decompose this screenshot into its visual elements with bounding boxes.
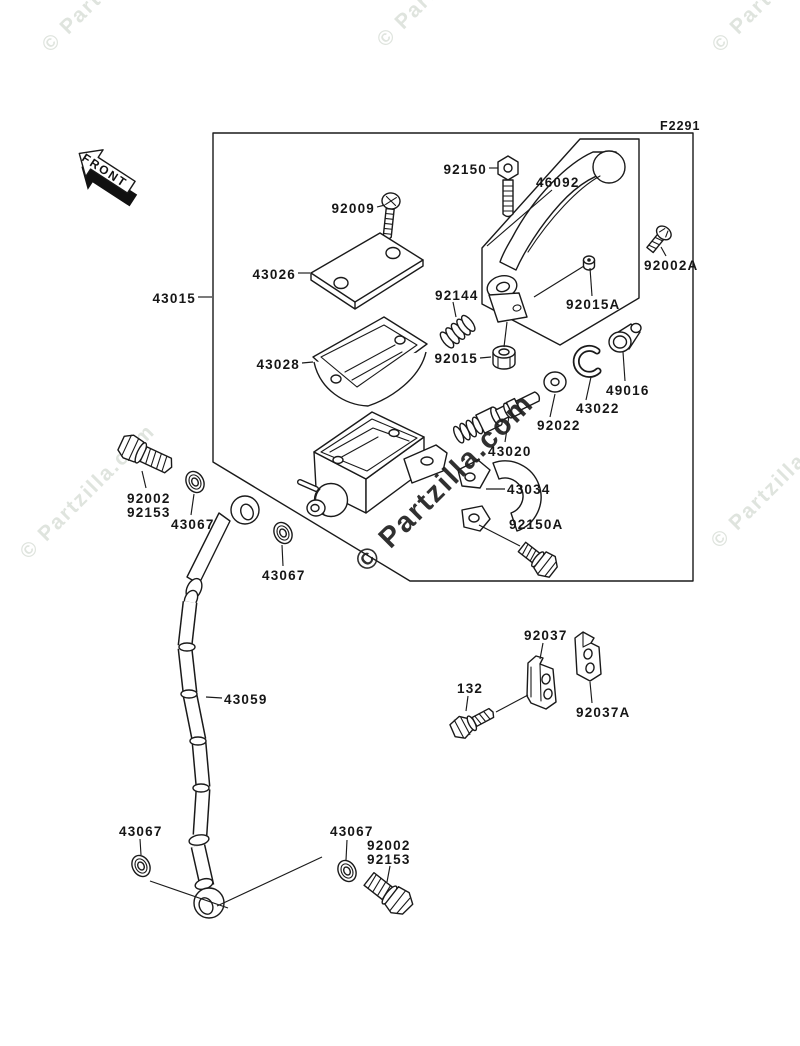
piston-assembly-drawing (451, 387, 543, 446)
bracket-92037-drawing (527, 656, 556, 709)
reservoir-cap-drawing (311, 233, 423, 309)
part-label: 92037A (576, 705, 631, 720)
boot-49016-drawing (609, 324, 641, 353)
part-label: 92144 (435, 288, 479, 303)
part-label: 43034 (507, 482, 551, 497)
washer-43067-lower1-drawing (128, 852, 153, 879)
banjo-bolt-lower-drawing (361, 868, 417, 920)
diagram-canvas: F2291 FRONT (0, 0, 800, 1046)
part-label: 92022 (537, 418, 581, 433)
part-label: 92002A (644, 258, 699, 273)
spring-92144-drawing (438, 313, 477, 350)
washer-43067-upper2-drawing (270, 519, 295, 546)
bolt-92150A-drawing (515, 537, 562, 581)
part-label: 92153 (127, 505, 171, 520)
part-label: 43015 (152, 291, 196, 306)
bolt-132-drawing (448, 701, 498, 742)
screw-92002A-drawing (644, 223, 674, 255)
washer-43067-upper1-drawing (182, 468, 207, 495)
part-label: 92153 (367, 852, 411, 867)
part-label: 92150 (443, 162, 487, 177)
part-label: 43067 (262, 568, 306, 583)
part-label: 92002 (127, 491, 171, 506)
circlip-43022-drawing (576, 348, 598, 374)
part-label: 43020 (488, 444, 532, 459)
nut-92015A-drawing (584, 256, 595, 270)
part-label: 43067 (119, 824, 163, 839)
part-label: 43067 (330, 824, 374, 839)
master-cylinder-body-drawing (300, 412, 447, 517)
part-label: 92015 (434, 351, 478, 366)
nut-92015-drawing (493, 346, 515, 369)
front-direction-arrow: FRONT (65, 140, 147, 214)
part-label: 92150A (509, 517, 564, 532)
part-label: 49016 (606, 383, 650, 398)
washer-43067-lower2-drawing (334, 857, 359, 884)
brake-hose-drawing (179, 496, 259, 918)
banjo-bolt-upper-drawing (116, 432, 177, 478)
diaphragm-drawing (313, 317, 427, 406)
part-label: 132 (457, 681, 483, 696)
part-label: 43067 (171, 517, 215, 532)
bolt-92150-drawing (498, 156, 518, 217)
bracket-92037A-drawing (575, 632, 601, 681)
part-label: 43059 (224, 692, 268, 707)
part-label: 43022 (576, 401, 620, 416)
parts-diagram-page: { "figure_code": "F2291", "front_arrow":… (0, 0, 800, 1046)
part-label: 92015A (566, 297, 621, 312)
figure-code: F2291 (660, 119, 700, 133)
part-label: 92002 (367, 838, 411, 853)
part-label: 43028 (256, 357, 300, 372)
washer-92022-drawing (544, 372, 566, 392)
part-label: 92009 (331, 201, 375, 216)
part-label: 43026 (252, 267, 296, 282)
part-label: 46092 (536, 175, 580, 190)
part-label: 92037 (524, 628, 568, 643)
